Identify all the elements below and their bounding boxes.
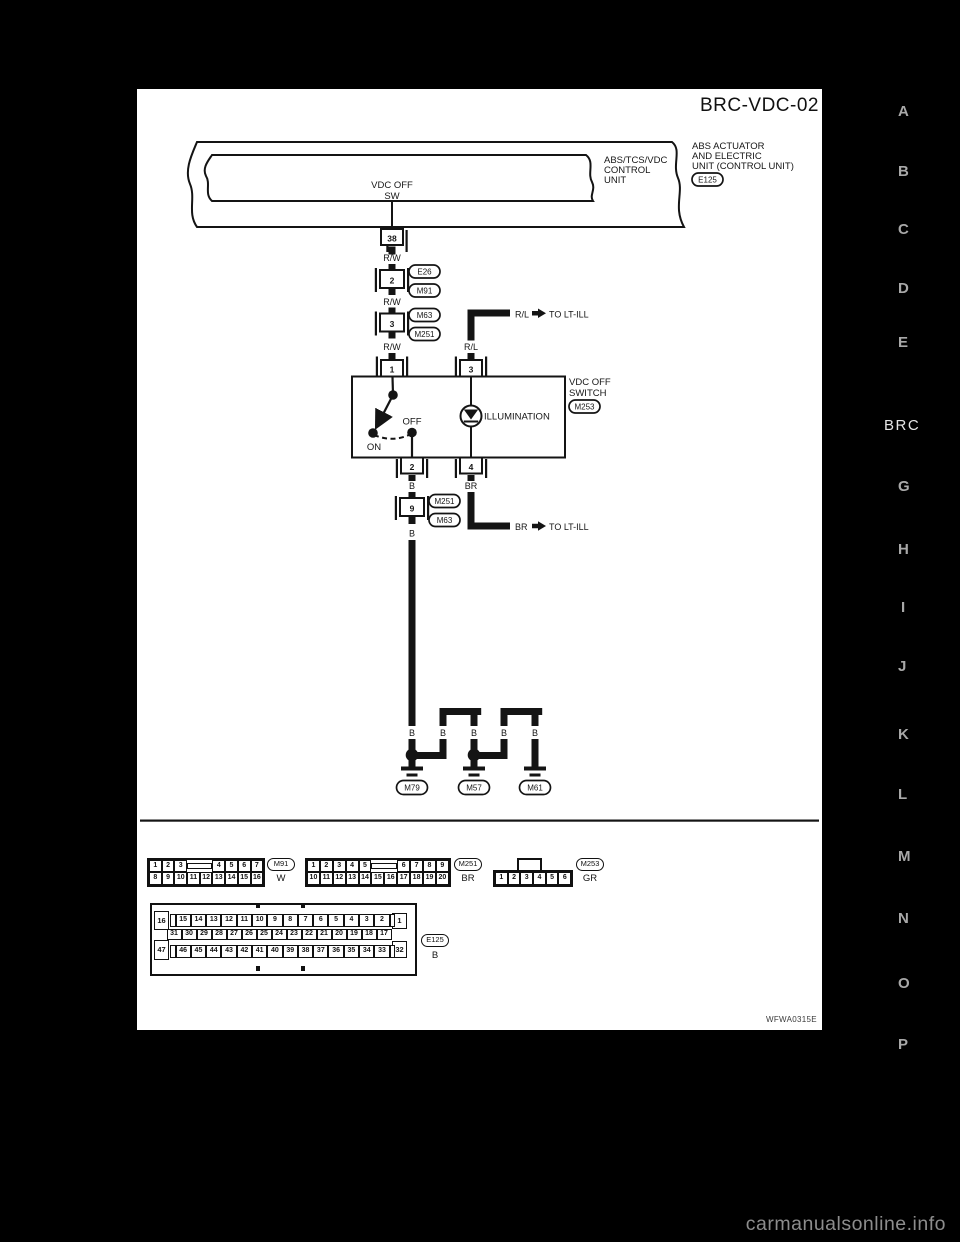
pin-cell: 29 bbox=[197, 929, 212, 941]
pin-cell: 7 bbox=[298, 914, 313, 927]
index-letter-c: C bbox=[898, 222, 909, 237]
pin-4: 4 bbox=[455, 458, 487, 479]
manual-page: BRC-VDC-02 ABS/TCS/VDC CONTROL UNIT ABS … bbox=[0, 0, 960, 1242]
illumination-label: ILLUMINATION bbox=[484, 412, 550, 423]
svg-text:1: 1 bbox=[390, 365, 395, 375]
wire-color-b-g4: B bbox=[501, 728, 507, 738]
blank-cell bbox=[390, 914, 396, 927]
key-slot bbox=[187, 863, 212, 870]
m91-row1-left: 123 bbox=[149, 860, 187, 872]
index-letter-d: D bbox=[898, 281, 909, 296]
pin-cell: 11 bbox=[320, 872, 333, 884]
bridge2-top-bar bbox=[501, 708, 543, 715]
ground-label-m61: M61 bbox=[527, 784, 543, 793]
connector-oval-m251-label: M251 bbox=[414, 330, 435, 339]
pinout-m91-row1: 123 4567 bbox=[149, 860, 263, 872]
pin-cell: 28 bbox=[212, 929, 227, 941]
pin-cell: 8 bbox=[423, 860, 436, 872]
connector-oval-e125-label: E125 bbox=[698, 176, 717, 185]
connector-oval-e26-label: E26 bbox=[417, 268, 432, 277]
pin-cell: 25 bbox=[257, 929, 272, 941]
pin-cell: 5 bbox=[328, 914, 343, 927]
e125-row3-cells: 4645444342414039383736353433 bbox=[176, 945, 390, 958]
pin-cell: 4 bbox=[533, 872, 546, 885]
wire-color-rl-branch: R/L bbox=[515, 310, 529, 320]
pin-cell: 42 bbox=[237, 945, 252, 958]
pin-cell: 12 bbox=[200, 872, 213, 884]
pinout-color-m91: W bbox=[267, 873, 295, 884]
index-letter-a: A bbox=[898, 104, 909, 119]
connector-notch bbox=[301, 903, 305, 908]
pinout-e125-row1: 15141312111098765432 bbox=[170, 914, 395, 927]
pin-cell: 45 bbox=[191, 945, 206, 958]
index-letter-p: P bbox=[898, 1037, 908, 1052]
pin-cell: 6 bbox=[397, 860, 410, 872]
pin-cell: 30 bbox=[182, 929, 197, 941]
index-letter-h: H bbox=[898, 542, 909, 557]
pin-cell: 14 bbox=[191, 914, 206, 927]
pin-cell: 15 bbox=[371, 872, 384, 884]
pin-cell: 7 bbox=[410, 860, 423, 872]
svg-text:4: 4 bbox=[469, 462, 474, 472]
bridge1-top-bar bbox=[440, 708, 482, 715]
ground-stub-1 bbox=[409, 755, 416, 767]
watermark: carmanualsonline.info bbox=[746, 1213, 946, 1236]
inner-unit-name-3: UNIT bbox=[604, 175, 626, 186]
pin-cell: 43 bbox=[221, 945, 236, 958]
switch-name-2: SWITCH bbox=[569, 388, 607, 399]
pin-cell: 15 bbox=[176, 914, 191, 927]
diagram-sheet: BRC-VDC-02 ABS/TCS/VDC CONTROL UNIT ABS … bbox=[137, 89, 822, 1030]
m251-row1-left: 12345 bbox=[307, 860, 371, 872]
svg-text:9: 9 bbox=[410, 504, 415, 514]
pin-cell: 20 bbox=[436, 872, 449, 884]
wire-rl-vertical bbox=[468, 310, 475, 341]
pin-cell: 4 bbox=[212, 860, 225, 872]
pin-cell: 5 bbox=[225, 860, 238, 872]
pin-cell: 35 bbox=[344, 945, 359, 958]
pin-cell: 19 bbox=[423, 872, 436, 884]
pin-cell: 39 bbox=[283, 945, 298, 958]
ground-label-m79: M79 bbox=[404, 784, 420, 793]
pin-cell: 11 bbox=[237, 914, 252, 927]
pin-cell: 33 bbox=[374, 945, 389, 958]
key-slot bbox=[371, 863, 397, 870]
wire-color-rw-3: R/W bbox=[383, 342, 401, 352]
index-letter-e: E bbox=[898, 335, 908, 350]
pinout-oval-m253: M253 bbox=[576, 858, 604, 871]
e125-row1-cells: 15141312111098765432 bbox=[176, 914, 390, 927]
pinout-m251-row1: 12345 6789 bbox=[307, 860, 449, 872]
pin-cell: 15 bbox=[238, 872, 251, 884]
wire-stub bbox=[389, 353, 396, 360]
pin-cell: 3 bbox=[359, 914, 374, 927]
connector-notch bbox=[256, 966, 260, 971]
pin-cell: 12 bbox=[333, 872, 346, 884]
switch-name-1: VDC OFF bbox=[569, 377, 611, 388]
arrow-right-icon bbox=[532, 521, 546, 531]
pinout-m253: 123456 bbox=[493, 870, 573, 887]
index-letter-o: O bbox=[898, 976, 910, 991]
index-section-brc: BRC bbox=[884, 418, 920, 433]
pin-cell: 3 bbox=[520, 872, 533, 885]
svg-text:2: 2 bbox=[410, 462, 415, 472]
connector-oval-m63-2-label: M63 bbox=[437, 516, 453, 525]
connector-oval-m63-label: M63 bbox=[417, 311, 433, 320]
arrow-right-icon bbox=[532, 309, 546, 319]
index-letter-k: K bbox=[898, 727, 909, 742]
ground-link-1 bbox=[412, 752, 443, 759]
pin-cell: 9 bbox=[267, 914, 282, 927]
pin-cell: 1 bbox=[307, 860, 320, 872]
pin-cell: 9 bbox=[162, 872, 175, 884]
pin-cell: 14 bbox=[359, 872, 372, 884]
wire-stub bbox=[468, 353, 475, 360]
m251-row1-right: 6789 bbox=[397, 860, 449, 872]
branch-to-lt-ill-top: TO LT-ILL bbox=[549, 310, 589, 320]
pin-cell: 10 bbox=[174, 872, 187, 884]
index-letter-i: I bbox=[901, 600, 905, 615]
wire-stub bbox=[389, 287, 396, 295]
wire-color-br-1: BR bbox=[465, 481, 478, 491]
divider-line bbox=[140, 820, 819, 822]
branch-to-lt-ill-bottom: TO LT-ILL bbox=[549, 522, 589, 532]
pin-cell: 21 bbox=[317, 929, 332, 941]
pin-cell: 6 bbox=[238, 860, 251, 872]
pin-cell: 5 bbox=[359, 860, 372, 872]
pin-cell: 14 bbox=[225, 872, 238, 884]
connector-notch bbox=[256, 903, 260, 908]
pin-cell: 27 bbox=[227, 929, 242, 941]
pin-cell: 36 bbox=[328, 945, 343, 958]
pin-cell: 8 bbox=[149, 872, 162, 884]
connector-oval-m91-label: M91 bbox=[417, 287, 433, 296]
index-letter-l: L bbox=[898, 787, 907, 802]
pinout-e125-row3: 4645444342414039383736353433 bbox=[170, 945, 395, 958]
pin-cell: 17 bbox=[377, 929, 392, 941]
pin-cell: 2 bbox=[508, 872, 521, 885]
outer-unit-name-3: UNIT (CONTROL UNIT) bbox=[692, 161, 794, 172]
wire-color-b-1: B bbox=[409, 481, 415, 491]
pin-cell: 13 bbox=[206, 914, 221, 927]
pin-2: 2 bbox=[396, 458, 428, 479]
pin-cell: 19 bbox=[347, 929, 362, 941]
pin-cell: 5 bbox=[546, 872, 559, 885]
bridge1-left-leg-bottom bbox=[440, 739, 447, 759]
pinout-m91-row2: 8910111213141516 bbox=[149, 872, 263, 884]
ground-label-m57: M57 bbox=[466, 784, 482, 793]
pin-cell: 3 bbox=[333, 860, 346, 872]
pin-cell: 44 bbox=[206, 945, 221, 958]
signal-label-1: VDC OFF bbox=[371, 180, 413, 191]
pin-cell: 22 bbox=[302, 929, 317, 941]
pin-cell: 40 bbox=[267, 945, 282, 958]
connector-oval-m253-label: M253 bbox=[574, 403, 595, 412]
pin-cell: 6 bbox=[558, 872, 571, 885]
pin-cell: 31 bbox=[167, 929, 182, 941]
bridge2-left-leg-bottom bbox=[501, 739, 508, 759]
pin-cell: 1 bbox=[149, 860, 162, 872]
pinout-oval-m91: M91 bbox=[267, 858, 295, 871]
pin-cell: 11 bbox=[187, 872, 200, 884]
m91-row1-right: 4567 bbox=[212, 860, 263, 872]
wire-color-b-g1: B bbox=[409, 728, 415, 738]
wire-color-rw-2: R/W bbox=[383, 297, 401, 307]
pin-cell: 23 bbox=[287, 929, 302, 941]
bridge1-right-leg-top bbox=[471, 715, 478, 726]
pin-cell: 18 bbox=[362, 929, 377, 941]
pin-cell: 24 bbox=[272, 929, 287, 941]
pin-cell: 46 bbox=[176, 945, 191, 958]
pin-cell: 17 bbox=[397, 872, 410, 884]
pin-cell: 13 bbox=[346, 872, 359, 884]
bridge2-right-leg-bottom bbox=[532, 739, 539, 767]
ground-icon-m79 bbox=[401, 767, 423, 777]
pin-cell: 8 bbox=[283, 914, 298, 927]
pin-cell: 6 bbox=[313, 914, 328, 927]
wire-color-b-g5: B bbox=[532, 728, 538, 738]
e125-corner-47: 47 bbox=[154, 940, 169, 960]
pin-cell: 4 bbox=[344, 914, 359, 927]
svg-text:38: 38 bbox=[387, 234, 397, 244]
figure-code: WFWA0315E bbox=[766, 1015, 817, 1024]
wire-br-branch-horizontal bbox=[468, 523, 511, 530]
wire-stub bbox=[409, 515, 416, 524]
svg-text:3: 3 bbox=[469, 365, 474, 375]
wire-color-b-2: B bbox=[409, 529, 415, 539]
wire-color-b-g2: B bbox=[440, 728, 446, 738]
ground-link-2 bbox=[474, 752, 504, 759]
wiring-diagram-svg: ABS/TCS/VDC CONTROL UNIT ABS ACTUATOR AN… bbox=[137, 89, 822, 1030]
pinout-m251-row2: 1011121314151617181920 bbox=[307, 872, 449, 884]
pin-cell: 2 bbox=[320, 860, 333, 872]
pinout-oval-m251: M251 bbox=[454, 858, 482, 871]
wire-color-rw-1: R/W bbox=[383, 253, 401, 263]
pinout-e125-row2: 313029282726252423222120191817 bbox=[167, 929, 392, 941]
switch-on-label: ON bbox=[367, 442, 381, 453]
pinout-m253-row: 123456 bbox=[495, 872, 571, 885]
pin-cell: 9 bbox=[436, 860, 449, 872]
pin-cell: 2 bbox=[162, 860, 175, 872]
pin-cell: 16 bbox=[384, 872, 397, 884]
ground-stub-2 bbox=[471, 755, 478, 767]
pin-cell: 38 bbox=[298, 945, 313, 958]
index-letter-n: N bbox=[898, 911, 909, 926]
pinout-color-m253: GR bbox=[576, 873, 604, 884]
e125-corner-16: 16 bbox=[154, 911, 169, 930]
pin-cell: 26 bbox=[242, 929, 257, 941]
switch-off-label: OFF bbox=[403, 417, 422, 428]
index-letter-j: J bbox=[898, 659, 906, 674]
pin-cell: 37 bbox=[313, 945, 328, 958]
bridge2-right-leg-top bbox=[532, 715, 539, 726]
pin-cell: 34 bbox=[359, 945, 374, 958]
pin-cell: 12 bbox=[221, 914, 236, 927]
pin-cell: 1 bbox=[495, 872, 508, 885]
svg-text:2: 2 bbox=[390, 276, 395, 286]
pin-cell: 16 bbox=[251, 872, 264, 884]
connector-notch bbox=[301, 966, 305, 971]
pinout-m251: 12345 6789 1011121314151617181920 bbox=[305, 858, 451, 887]
ground-icon-m57 bbox=[463, 767, 485, 777]
pin-1: 1 bbox=[376, 357, 408, 377]
pin-cell: 20 bbox=[332, 929, 347, 941]
pin-cell: 4 bbox=[346, 860, 359, 872]
pin-cell: 18 bbox=[410, 872, 423, 884]
pinout-color-m251: BR bbox=[454, 873, 482, 884]
blank-cell bbox=[390, 945, 396, 958]
pin-cell: 3 bbox=[174, 860, 187, 872]
connector-oval-m251-2-label: M251 bbox=[434, 497, 455, 506]
wire-color-br-branch: BR bbox=[515, 522, 528, 532]
wire-stub bbox=[389, 331, 396, 339]
pinout-color-e125: B bbox=[421, 950, 449, 961]
pin-cell: 2 bbox=[374, 914, 389, 927]
wire-color-rl: R/L bbox=[464, 342, 478, 352]
pin-cell: 7 bbox=[251, 860, 264, 872]
pin-cell: 41 bbox=[252, 945, 267, 958]
wire-b-long bbox=[409, 540, 416, 726]
index-letter-b: B bbox=[898, 164, 909, 179]
pinout-oval-e125: E125 bbox=[421, 934, 449, 947]
pinout-e125: 16 47 1 32 15141312111098765432 31302928… bbox=[150, 903, 417, 976]
pin-cell: 10 bbox=[252, 914, 267, 927]
index-letter-m: M bbox=[898, 849, 911, 864]
ground-icon-m61 bbox=[524, 767, 546, 777]
svg-text:3: 3 bbox=[390, 319, 395, 329]
index-letter-g: G bbox=[898, 479, 910, 494]
pinout-m91: 123 4567 8910111213141516 bbox=[147, 858, 265, 887]
pin-cell: 10 bbox=[307, 872, 320, 884]
signal-label-2: SW bbox=[384, 191, 399, 202]
pin-3: 3 bbox=[455, 357, 487, 377]
wire-color-b-g3: B bbox=[471, 728, 477, 738]
pin-cell: 13 bbox=[212, 872, 225, 884]
